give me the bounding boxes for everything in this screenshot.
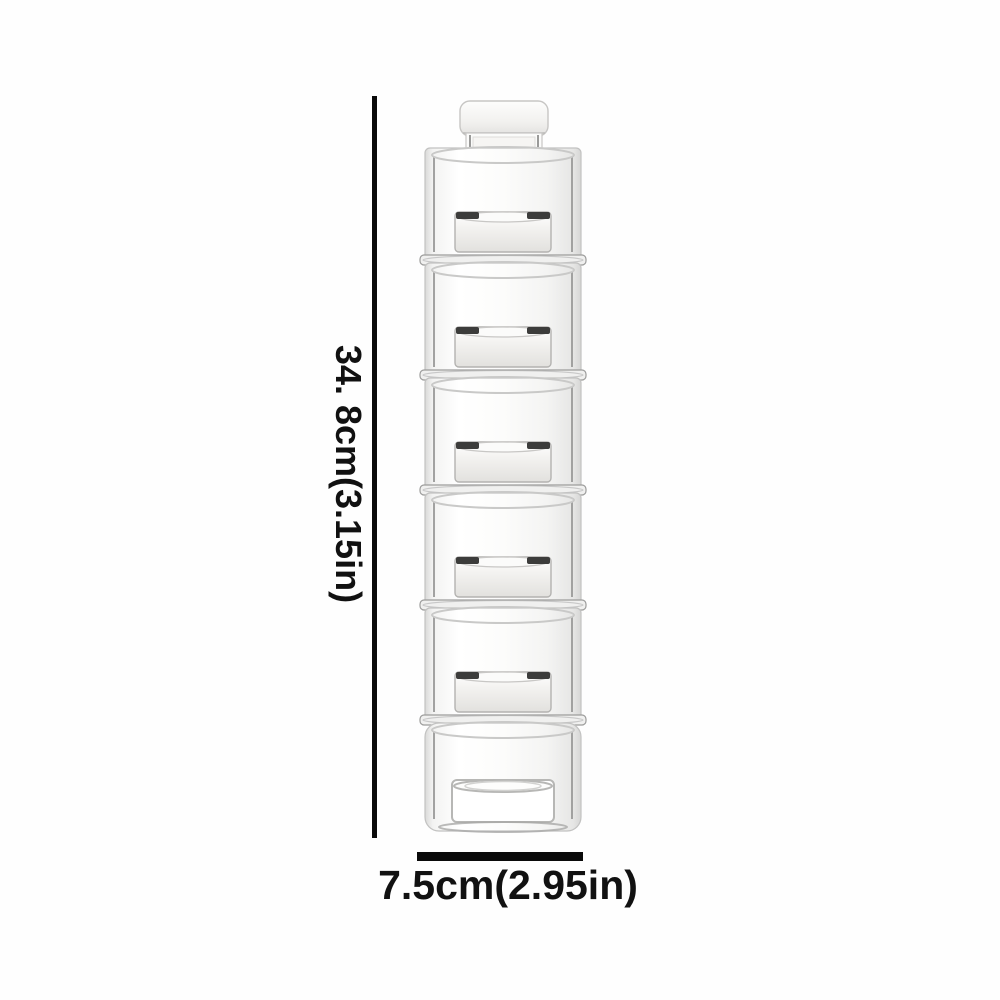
inner-white-lid — [455, 327, 551, 367]
inner-white-lid — [455, 672, 551, 712]
width-dimension-label: 7.5cm(2.95in) — [358, 862, 658, 909]
jar-tier-1 — [420, 147, 586, 265]
jar-tier-4 — [420, 492, 586, 610]
spice-jar-tower — [420, 101, 586, 832]
top-cap — [460, 101, 548, 153]
height-dimension-line — [372, 96, 377, 838]
inner-white-lid — [455, 212, 551, 252]
width-dimension-line — [417, 852, 583, 861]
inner-clear-jar — [452, 780, 554, 822]
jar-tier-2 — [420, 262, 586, 380]
height-dimension-label: 34. 8cm(3.15in) — [326, 324, 370, 624]
inner-white-lid — [455, 557, 551, 597]
product-dimension-image: 34. 8cm(3.15in) 7.5cm(2.95in) — [0, 0, 1000, 1000]
jar-tier-3 — [420, 377, 586, 495]
jar-tier-5 — [420, 607, 586, 725]
jar-tier-6 — [425, 722, 581, 832]
inner-white-lid — [455, 442, 551, 482]
product-photo-spice-jar-tower — [0, 0, 1000, 1000]
